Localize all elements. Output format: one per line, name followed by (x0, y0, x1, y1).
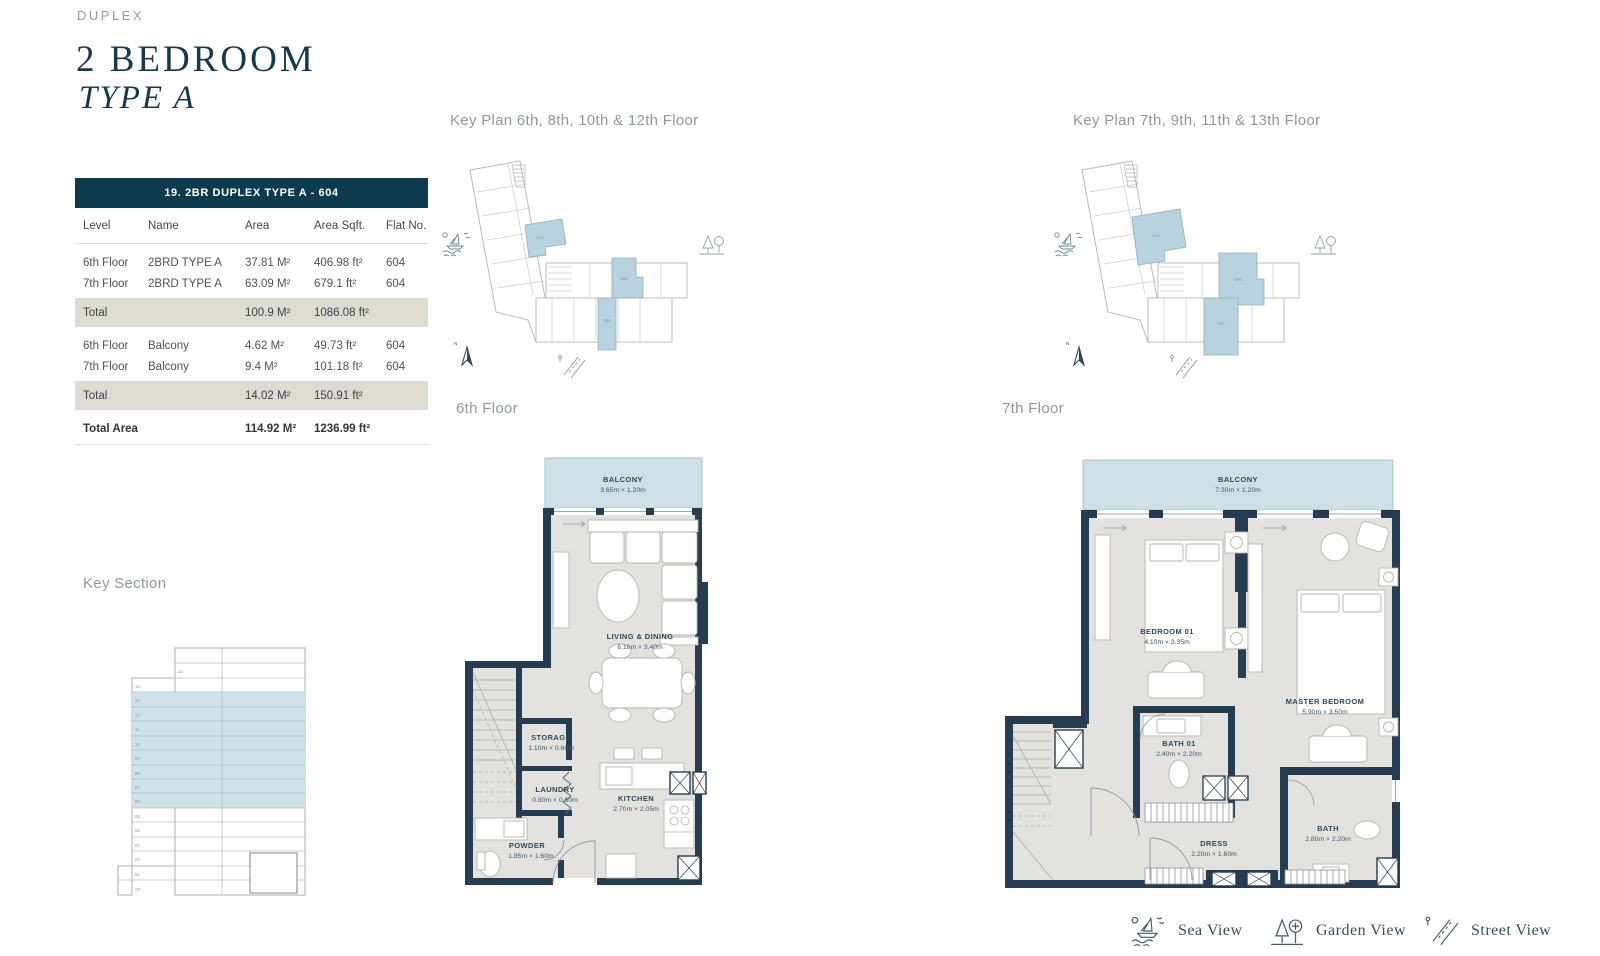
svg-text:KITCHEN: KITCHEN (618, 794, 654, 803)
svg-text:5.90m × 3.50m: 5.90m × 3.50m (1302, 709, 1348, 716)
floor7-plan: BALCONY 7.30m × 1.20m BEDROOM 01 4.10m ×… (995, 440, 1405, 900)
garden-view-icon (1311, 236, 1336, 254)
floor7-balcony (1083, 460, 1393, 510)
north-arrow-icon: N (454, 341, 472, 365)
col-flat: Flat No. (378, 220, 428, 232)
floor6-plan: BALCONY 3.65m × 1.20m LIVING & DINING 6.… (450, 440, 715, 900)
svg-text:BALCONY: BALCONY (1218, 475, 1258, 484)
svg-text:14: 14 (135, 684, 140, 689)
keyplan1-title: Key Plan 6th, 8th, 10th & 12th Floor (450, 112, 698, 129)
table-row: 6th Floor Balcony 4.62 M² 49.73 ft² 604 (75, 335, 428, 356)
legend-garden-label: Garden View (1316, 922, 1406, 940)
floor6-label: 6th Floor (456, 400, 518, 417)
svg-text:2.70m × 2.05m: 2.70m × 2.05m (613, 806, 659, 813)
legend-street-label: Street View (1471, 922, 1551, 940)
svg-text:6.10m × 3.40m: 6.10m × 3.40m (617, 644, 663, 651)
keyplan-unit-number: 604 (1217, 321, 1225, 326)
svg-text:BALCONY: BALCONY (603, 475, 643, 484)
floor7-label: 7th Floor (1002, 400, 1064, 417)
sea-view-icon (443, 233, 470, 256)
north-arrow-icon: N (1066, 341, 1084, 365)
svg-text:12: 12 (135, 713, 140, 718)
keyplan-unit-number: 612 (1152, 233, 1160, 238)
table-row: 7th Floor Balcony 9.4 M² 101.18 ft² 604 (75, 356, 428, 377)
svg-text:10: 10 (135, 742, 140, 747)
table-subtotal-row: Total 14.02 M² 150.91 ft² (75, 381, 428, 410)
keyplan-unit-number: 609 (1234, 277, 1242, 282)
svg-text:MASTER BEDROOM: MASTER BEDROOM (1286, 697, 1365, 706)
keyplan-unit-number: 612 (536, 235, 544, 240)
garden-view-icon (1270, 915, 1304, 947)
legend-street-view: Street View (1425, 915, 1551, 947)
svg-text:06: 06 (135, 799, 140, 804)
svg-text:15: 15 (178, 669, 183, 674)
svg-text:0.80m × 0.60m: 0.80m × 0.60m (532, 797, 578, 804)
legend-sea-view: Sea View (1130, 915, 1243, 947)
table-row: 7th Floor 2BRD TYPE A 63.09 M² 679.1 ft²… (75, 273, 428, 294)
table-row: 6th Floor 2BRD TYPE A 37.81 M² 406.98 ft… (75, 252, 428, 273)
col-area: Area (237, 220, 306, 232)
area-table-header: 19. 2BR DUPLEX TYPE A - 604 (75, 178, 428, 208)
keyplan2-drawing: 612 609 604 N (1052, 145, 1372, 395)
svg-text:LIVING & DINING: LIVING & DINING (607, 632, 674, 641)
table-total-row: Total Area 114.92 M² 1236.99 ft² (75, 414, 428, 445)
svg-text:DRESS: DRESS (1200, 839, 1228, 848)
svg-text:13: 13 (135, 698, 140, 703)
svg-text:7.30m × 1.20m: 7.30m × 1.20m (1215, 487, 1261, 494)
legend-garden-view: Garden View (1270, 915, 1406, 947)
svg-text:01: 01 (135, 872, 140, 877)
street-view-icon (1425, 915, 1459, 947)
street-view-icon (559, 356, 585, 378)
sea-view-icon (1055, 233, 1082, 256)
street-view-icon (1171, 356, 1197, 378)
legend-sea-label: Sea View (1178, 922, 1243, 940)
svg-text:3.65m × 1.20m: 3.65m × 1.20m (600, 487, 646, 494)
svg-text:11: 11 (135, 727, 140, 732)
svg-text:N: N (454, 341, 457, 346)
page-title: 2 BEDROOM (76, 38, 316, 81)
svg-text:2.80m × 2.20m: 2.80m × 2.20m (1305, 836, 1351, 843)
svg-text:BATH: BATH (1317, 824, 1339, 833)
area-table-columns: Level Name Area Area Sqft. Flat No. (75, 208, 428, 244)
svg-text:09: 09 (135, 756, 140, 761)
svg-text:STORAGE: STORAGE (531, 733, 571, 742)
svg-text:2.20m × 1.60m: 2.20m × 1.60m (1191, 851, 1237, 858)
svg-text:POWDER: POWDER (509, 841, 545, 850)
key-section-drawing: 15 14 13 12 11 10 09 08 07 06 05 04 03 0… (105, 625, 315, 900)
table-subtotal-row: Total 100.9 M² 1086.08 ft² (75, 298, 428, 327)
svg-text:2.40m × 2.20m: 2.40m × 2.20m (1156, 751, 1202, 758)
svg-text:LAUNDRY: LAUNDRY (535, 785, 574, 794)
keyplan-unit-number: 604 (603, 318, 611, 323)
sea-view-icon (1130, 915, 1166, 947)
svg-text:03: 03 (135, 843, 140, 848)
key-section-title: Key Section (83, 575, 166, 592)
garden-view-icon (699, 236, 724, 254)
col-level: Level (75, 220, 140, 232)
svg-text:04: 04 (135, 828, 140, 833)
svg-text:4.10m × 3.35m: 4.10m × 3.35m (1144, 639, 1190, 646)
svg-text:1.10m × 0.60m: 1.10m × 0.60m (528, 745, 574, 752)
page-eyebrow: DUPLEX (77, 8, 144, 23)
col-name: Name (140, 220, 237, 232)
svg-text:GF: GF (135, 887, 141, 892)
svg-text:05: 05 (135, 814, 140, 819)
svg-text:07: 07 (135, 785, 140, 790)
svg-text:N: N (1066, 341, 1069, 346)
keyplan-unit-number: 609 (620, 276, 628, 281)
svg-text:08: 08 (135, 771, 140, 776)
page-subtitle: TYPE A (79, 80, 196, 117)
svg-text:BATH 01: BATH 01 (1162, 739, 1196, 748)
keyplan1-drawing: 612 609 604 N (440, 145, 760, 395)
keyplan2-title: Key Plan 7th, 9th, 11th & 13th Floor (1073, 112, 1320, 129)
svg-text:BEDROOM 01: BEDROOM 01 (1140, 627, 1194, 636)
svg-text:1.85m × 1.60m: 1.85m × 1.60m (508, 853, 554, 860)
svg-text:02: 02 (135, 857, 140, 862)
area-table: 19. 2BR DUPLEX TYPE A - 604 Level Name A… (75, 178, 428, 445)
col-sqft: Area Sqft. (306, 220, 378, 232)
